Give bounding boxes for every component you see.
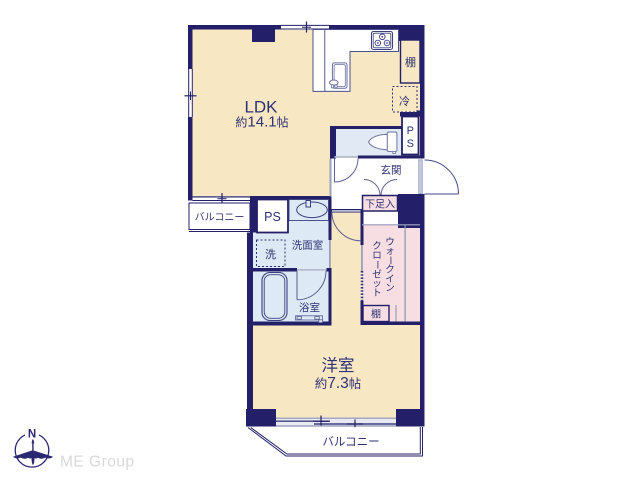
svg-text:棚: 棚 [371,308,381,321]
svg-text:ー: ー [371,260,382,270]
svg-text:約7.3帖: 約7.3帖 [315,375,362,392]
svg-text:PS: PS [264,210,281,224]
svg-text:N: N [28,429,36,441]
svg-text:洗面室: 洗面室 [292,239,324,252]
svg-text:ME Group: ME Group [60,454,135,471]
svg-text:バルコニー: バルコニー [322,436,379,449]
svg-text:玄関: 玄関 [381,164,402,177]
svg-text:約14.1帖: 約14.1帖 [235,114,288,131]
svg-text:洗: 洗 [265,248,276,261]
svg-text:ト: ト [372,288,382,299]
svg-text:棚: 棚 [405,55,416,69]
svg-text:バルコニー: バルコニー [195,212,245,224]
svg-text:ン: ン [385,283,395,294]
svg-text:冷: 冷 [399,95,410,108]
svg-text:下足入: 下足入 [365,199,395,211]
svg-text:P: P [407,125,414,137]
svg-text:浴室: 浴室 [299,301,320,314]
svg-text:S: S [407,138,414,150]
svg-text:洋室: 洋室 [322,356,355,375]
